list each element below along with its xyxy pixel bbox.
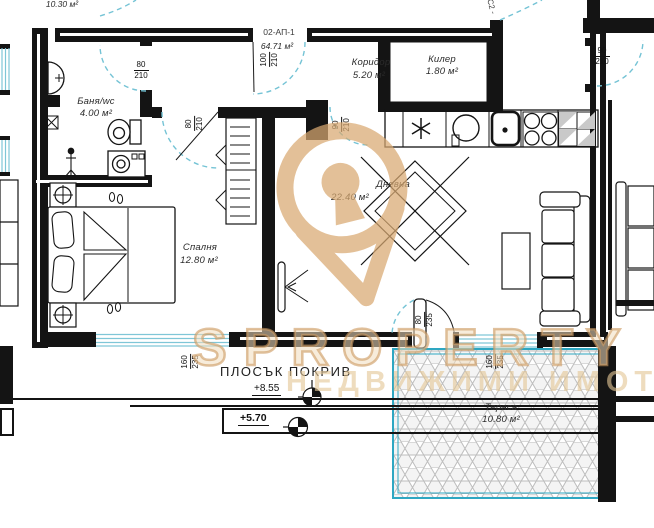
apartment-code: 02-АП-1 bbox=[263, 27, 295, 37]
room-name-storage: Килер bbox=[428, 54, 456, 65]
nightstand-lamp-top bbox=[50, 183, 76, 207]
watermark-mark: S bbox=[192, 319, 240, 377]
toilet-icon bbox=[108, 120, 141, 145]
counter-tiles bbox=[559, 112, 595, 146]
nightstand-lamp-bottom bbox=[50, 303, 76, 327]
dim-entrance-door: 100210 bbox=[260, 47, 280, 73]
floor-plan: 02-АП-1 64.71 м² 10.30 м² С2 - Баня/wc 4… bbox=[0, 0, 654, 528]
dim-bedroom-door: 80210 bbox=[185, 111, 205, 137]
level-mark-lower: +5.70 bbox=[238, 412, 269, 426]
room-name-bathroom: Баня/wc bbox=[77, 96, 114, 107]
watermark-keyhole-pin-logo bbox=[240, 104, 460, 334]
dim-bath-door: 80210 bbox=[128, 61, 154, 81]
dim-neighbor-door: 90210 bbox=[589, 47, 615, 67]
sink-icon bbox=[492, 112, 519, 145]
double-bed-icon bbox=[48, 207, 175, 303]
coffee-table-icon bbox=[502, 233, 530, 289]
room-area-terrace: 10.80 м² bbox=[482, 414, 520, 425]
stove-icon bbox=[523, 112, 558, 147]
mop-icon bbox=[65, 148, 77, 178]
room-area-corridor: 5.20 м² bbox=[353, 70, 385, 81]
bedroom-furniture bbox=[48, 118, 256, 327]
watermark-subtitle: НЕДВИЖИМИ ИМОТИ bbox=[286, 366, 654, 399]
room-area-bathroom: 4.00 м² bbox=[80, 108, 112, 119]
level-mark-upper: +8.55 bbox=[252, 383, 281, 396]
room-name-terrace: Тераса bbox=[485, 402, 518, 413]
room-name-bedroom: Спалня bbox=[183, 242, 217, 253]
neighbor-area-label: 10.30 м² bbox=[46, 0, 78, 9]
room-name-corridor: Коридор bbox=[352, 57, 391, 68]
sofa-icon bbox=[540, 192, 590, 326]
bath-washing-machine-icon bbox=[108, 151, 145, 177]
room-area-storage: 1.80 м² bbox=[426, 66, 458, 77]
room-area-bedroom: 12.80 м² bbox=[180, 255, 218, 266]
